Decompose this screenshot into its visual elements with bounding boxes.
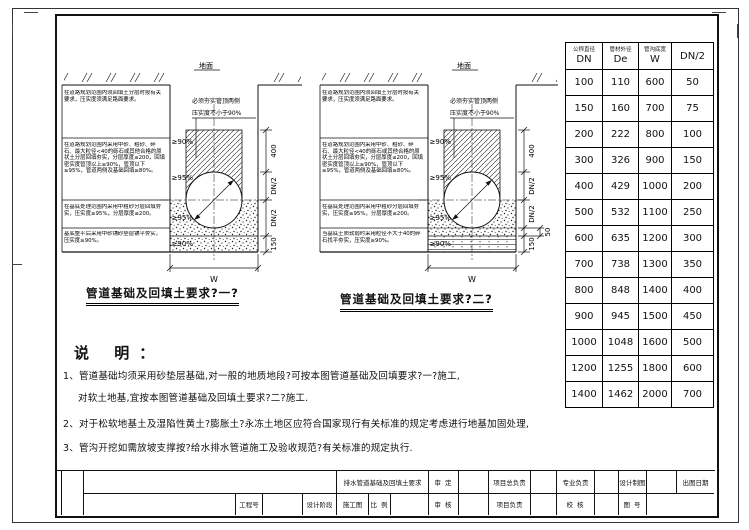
compaction-label: ≥90% bbox=[172, 138, 194, 146]
right-note-block-2: 在道路规划范围内采用中砂、粗砂、碎石、最大粒径<40的砾石或其他合格的原状土分层… bbox=[322, 142, 424, 198]
left-diagram-title: 管道基础及回填土要求?一? bbox=[86, 285, 239, 306]
cell-dn: 1000 bbox=[566, 330, 603, 356]
note-line-4: 3、管沟开挖如需放坡支撑按?给水排水管道施工及验收规范?有关标准的规定执行. bbox=[63, 440, 413, 454]
note-line-2: 对软土地基,宜按本图管道基础及回填土要求?二?施工. bbox=[78, 390, 308, 404]
cell-de: 1255 bbox=[603, 356, 639, 382]
compaction-label: ≥90% bbox=[430, 240, 452, 248]
tb-value-drawing-no bbox=[646, 493, 714, 515]
cell-dn2: 400 bbox=[672, 278, 714, 304]
drawing-sheet: 地面 必须夯实管顶两侧 压实度不小于90% ≥90% ≥95% ≥95 bbox=[0, 0, 749, 530]
cell-dn: 100 bbox=[566, 70, 603, 96]
table-row: 300 326 900 150 bbox=[566, 148, 714, 174]
cell-de: 160 bbox=[603, 96, 639, 122]
tb-value-project-director bbox=[530, 471, 556, 493]
soil-hatch-left bbox=[64, 71, 164, 84]
ground-label: 地面 bbox=[199, 61, 213, 70]
cell-dn: 200 bbox=[566, 122, 603, 148]
cell-de: 738 bbox=[603, 252, 639, 278]
table-row: 150 160 700 75 bbox=[566, 96, 714, 122]
left-note-block-2: 在道路规划范围内采用中砂、粗砂、碎石、最大粒径<40的砾石或其他合格的原状土分层… bbox=[64, 142, 166, 198]
cell-dn2: 150 bbox=[672, 148, 714, 174]
dim-label: 400 bbox=[528, 144, 536, 157]
table-row: 400 429 1000 200 bbox=[566, 174, 714, 200]
cell-dn2: 350 bbox=[672, 252, 714, 278]
cell-dn: 400 bbox=[566, 174, 603, 200]
right-note-block-1: 在道路规划范围内须回填土分层时按有关要求，压实度须满足路面要求。 bbox=[322, 90, 424, 134]
cell-w: 1500 bbox=[639, 304, 672, 330]
cell-dn2: 200 bbox=[672, 174, 714, 200]
tb-value-scale bbox=[390, 493, 428, 515]
cell-dn2: 100 bbox=[672, 122, 714, 148]
cell-w: 800 bbox=[639, 122, 672, 148]
header-dn: 公称直径DN bbox=[566, 43, 603, 70]
cell-dn2: 700 bbox=[672, 382, 714, 408]
table-row: 700 738 1300 350 bbox=[566, 252, 714, 278]
cell-de: 110 bbox=[603, 70, 639, 96]
tb-label-approved: 审 定 bbox=[428, 471, 458, 493]
table-row: 1200 1255 1800 600 bbox=[566, 356, 714, 382]
cell-w: 700 bbox=[639, 96, 672, 122]
cell-dn2: 500 bbox=[672, 330, 714, 356]
cell-dn: 500 bbox=[566, 200, 603, 226]
left-note-block-1: 在道路规划范围内须回填土分层时按有关要求，压实度须满足路面要求。 bbox=[64, 90, 166, 134]
compaction-label: ≥90% bbox=[430, 138, 452, 146]
tb-value-project-lead bbox=[530, 493, 556, 515]
cell-dn: 900 bbox=[566, 304, 603, 330]
width-label: W bbox=[468, 275, 476, 284]
table-row: 1400 1462 2000 700 bbox=[566, 382, 714, 408]
tb-label-project-lead: 项目负责 bbox=[488, 493, 530, 515]
cell-dn2: 50 bbox=[672, 70, 714, 96]
cell-dn2: 600 bbox=[672, 356, 714, 382]
cell-de: 532 bbox=[603, 200, 639, 226]
compaction-label: ≥95% bbox=[172, 174, 194, 182]
trim-mark bbox=[24, 12, 38, 13]
cell-w: 1400 bbox=[639, 278, 672, 304]
table-row: 500 532 1100 250 bbox=[566, 200, 714, 226]
cell-dn: 600 bbox=[566, 226, 603, 252]
tb-label-reviewed: 审 核 bbox=[428, 493, 458, 515]
table-header-row: 公称直径DN 管材外径De 管沟底宽W DN/2 bbox=[566, 43, 714, 70]
cell-dn2: 300 bbox=[672, 226, 714, 252]
left-note-block-4: 基底整平后采用中砂铺砂垫层铺平夯实，压实度≥90%。 bbox=[64, 231, 166, 249]
cell-w: 600 bbox=[639, 70, 672, 96]
crown-annotation-line2: 压实度不小于90% bbox=[450, 109, 500, 117]
tb-label-project-director: 项目总负责 bbox=[488, 471, 530, 493]
tb-label-drawing-no: 图 号 bbox=[618, 493, 646, 515]
cell-dn: 150 bbox=[566, 96, 603, 122]
width-label: W bbox=[210, 275, 218, 284]
cell-w: 1800 bbox=[639, 356, 672, 382]
table-row: 200 222 800 100 bbox=[566, 122, 714, 148]
tb-spare-col bbox=[61, 471, 83, 515]
cell-w: 900 bbox=[639, 148, 672, 174]
dim-label: DN/2 bbox=[270, 177, 278, 194]
table-row: 1000 1048 1600 500 bbox=[566, 330, 714, 356]
cell-de: 222 bbox=[603, 122, 639, 148]
tb-value-project-no bbox=[262, 493, 302, 515]
cell-dn2: 75 bbox=[672, 96, 714, 122]
center-mark bbox=[12, 264, 22, 265]
soil-hatch-left bbox=[322, 71, 422, 84]
note-line-1: 1、管道基础均须采用砂垫层基础,对一般的地质地段?可按本图管道基础及回填要求?一… bbox=[63, 368, 460, 382]
cell-w: 2000 bbox=[639, 382, 672, 408]
dim-label: DN/2 bbox=[528, 205, 536, 222]
table-row: 900 945 1500 450 bbox=[566, 304, 714, 330]
soil-hatch-right bbox=[519, 71, 557, 84]
right-note-block-4: 当基底土质软弱时采用粒径不大于40的碎石找平夯实，压实度≥90%。 bbox=[322, 231, 424, 249]
tb-value-reviewed bbox=[458, 493, 488, 515]
cell-de: 1048 bbox=[603, 330, 639, 356]
tb-label-issue-date: 出图日期 bbox=[676, 471, 714, 493]
dim-label: 150 bbox=[270, 237, 278, 250]
compaction-label: ≥90% bbox=[172, 240, 194, 248]
compaction-label: ≥95% bbox=[430, 174, 452, 182]
right-diagram-title: 管道基础及回填土要求?二? bbox=[340, 291, 493, 312]
table-row: 600 635 1200 300 bbox=[566, 226, 714, 252]
cell-de: 635 bbox=[603, 226, 639, 252]
cell-dn: 1400 bbox=[566, 382, 603, 408]
cell-w: 1200 bbox=[639, 226, 672, 252]
cell-de: 945 bbox=[603, 304, 639, 330]
header-dn2: DN/2 bbox=[672, 43, 714, 70]
tb-value-approved bbox=[458, 471, 488, 493]
notes-heading: 说 明： bbox=[74, 342, 164, 363]
tb-label-design-stage: 设计阶段 bbox=[302, 493, 336, 515]
cell-dn: 1200 bbox=[566, 356, 603, 382]
header-de: 管材外径De bbox=[603, 43, 639, 70]
table-row: 100 110 600 50 bbox=[566, 70, 714, 96]
header-w: 管沟底宽W bbox=[639, 43, 672, 70]
compaction-label: ≥95% bbox=[430, 214, 452, 222]
crown-annotation-line1: 必须夯实管顶两侧 bbox=[192, 97, 240, 105]
tb-value-design-stage: 施工图 bbox=[336, 493, 368, 515]
tb-label-drafter: 设计制图 bbox=[618, 471, 646, 493]
crown-annotation-line1: 必须夯实管顶两侧 bbox=[450, 97, 498, 105]
pipe-dimension-table: 公称直径DN 管材外径De 管沟底宽W DN/2 100 110 600 50 … bbox=[565, 42, 714, 408]
trim-mark bbox=[712, 12, 726, 13]
table-body: 100 110 600 50 150 160 700 75 200 222 80… bbox=[566, 70, 714, 408]
tb-label-checked: 校 核 bbox=[556, 493, 594, 515]
tb-drawing-name: 排水管道基础及回填土要求 bbox=[336, 471, 428, 493]
table-row: 800 848 1400 400 bbox=[566, 278, 714, 304]
title-block: 排水管道基础及回填土要求 审 定 项目总负责 专业负责 设计制图 出图日期 工程… bbox=[55, 470, 715, 515]
tb-value-discipline-lead bbox=[594, 471, 618, 493]
dim-label: 400 bbox=[270, 144, 278, 157]
ground-label: 地面 bbox=[457, 61, 471, 70]
trim-mark bbox=[737, 24, 738, 38]
cell-dn: 700 bbox=[566, 252, 603, 278]
dim-label: DN/2 bbox=[270, 209, 278, 226]
trim-mark bbox=[12, 24, 13, 38]
cell-w: 1100 bbox=[639, 200, 672, 226]
left-note-block-3: 在基底处理范围内采用中粗砂分层回填夯实，压实度≥95%，分层厚度≤200。 bbox=[64, 204, 166, 228]
dim-label: 50 bbox=[544, 228, 552, 237]
cell-w: 1000 bbox=[639, 174, 672, 200]
cell-de: 848 bbox=[603, 278, 639, 304]
note-line-3: 2、对于松软地基土及湿陷性黄土?膨胀土?永冻土地区应符合国家现行有关标准的规定考… bbox=[63, 416, 529, 430]
cell-dn2: 250 bbox=[672, 200, 714, 226]
tb-empty bbox=[83, 471, 336, 493]
tb-label-project-no: 工程号 bbox=[235, 493, 262, 515]
cell-dn: 800 bbox=[566, 278, 603, 304]
tb-value-drafter bbox=[646, 471, 676, 493]
compaction-label: ≥95% bbox=[172, 214, 194, 222]
tb-label-scale: 比 例 bbox=[368, 493, 390, 515]
tb-value-checked bbox=[594, 493, 618, 515]
cell-w: 1600 bbox=[639, 330, 672, 356]
cell-w: 1300 bbox=[639, 252, 672, 278]
dim-label: 150 bbox=[528, 237, 536, 250]
cell-de: 326 bbox=[603, 148, 639, 174]
cell-dn2: 450 bbox=[672, 304, 714, 330]
cell-de: 429 bbox=[603, 174, 639, 200]
tb-label-discipline-lead: 专业负责 bbox=[556, 471, 594, 493]
right-note-block-3: 在基底处理范围内采用中粗砂分层回填夯实，压实度≥95%，分层厚度≤200。 bbox=[322, 204, 424, 228]
dim-label: DN/2 bbox=[528, 177, 536, 194]
crown-annotation-line2: 压实度不小于90% bbox=[192, 109, 242, 117]
cell-dn: 300 bbox=[566, 148, 603, 174]
cell-de: 1462 bbox=[603, 382, 639, 408]
tb-empty bbox=[83, 493, 235, 515]
soil-hatch-right bbox=[261, 71, 301, 84]
